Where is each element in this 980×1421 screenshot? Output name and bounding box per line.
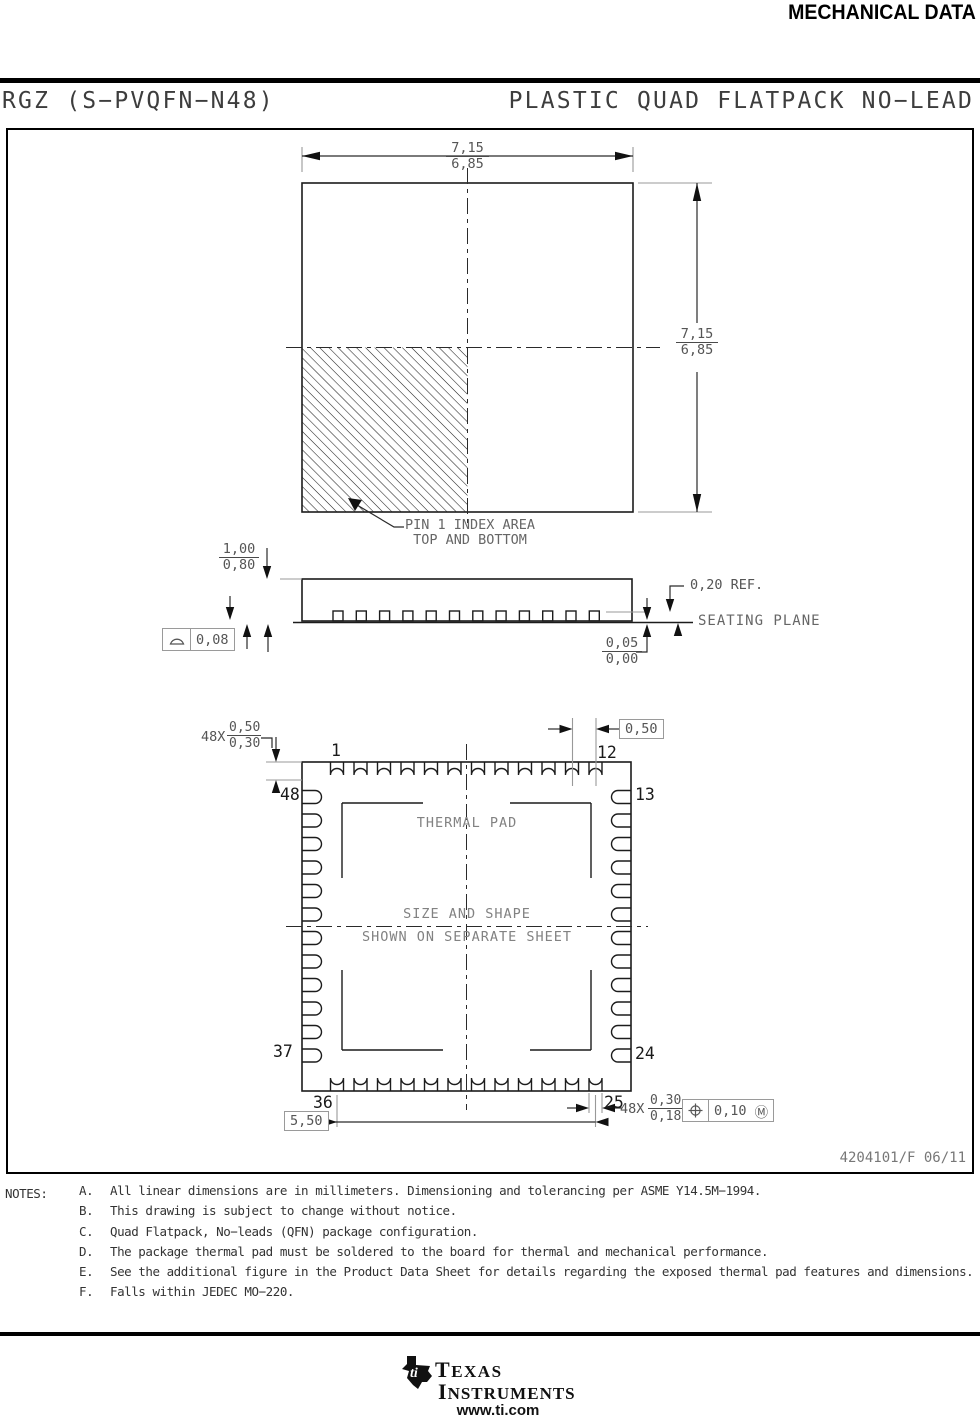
- seating-plane-label: SEATING PLANE: [698, 613, 821, 629]
- note-item: A. All linear dimensions are in millimet…: [0, 1183, 980, 1203]
- notes-section: NOTES: A. All linear dimensions are in m…: [0, 1183, 980, 1305]
- thermal-pad-label: THERMAL PAD: [357, 815, 577, 831]
- dim-body-height: 7,15 6,85: [676, 327, 718, 358]
- max-material-modifier-icon: Ⓜ: [755, 1101, 769, 1121]
- note-item: E. See the additional figure in the Prod…: [0, 1264, 980, 1284]
- note-item: F. Falls within JEDEC MO−220.: [0, 1284, 980, 1304]
- drawing-number: 4204101/F 06/11: [826, 1150, 966, 1166]
- pin-label-1: 1: [331, 741, 341, 760]
- pad-length-count: 48X: [201, 729, 225, 745]
- footer-rule: [0, 1332, 980, 1336]
- flatness-symbol-icon: [163, 629, 190, 650]
- side-view-leads: [333, 611, 599, 621]
- top-view-linework: [286, 147, 712, 527]
- size-note-line2: SHOWN ON SEPARATE SHEET: [357, 929, 577, 945]
- pin-label-24: 24: [635, 1044, 655, 1063]
- pin-label-12: 12: [597, 743, 617, 762]
- pin1-index-note: PIN 1 INDEX AREA TOP AND BOTTOM: [385, 518, 555, 548]
- dim-pad-width: 0,30 0,18: [648, 1093, 682, 1124]
- svg-text:ti: ti: [410, 1366, 418, 1381]
- mechanical-data-page: MECHANICAL DATA RGZ (S−PVQFN−N48) PLASTI…: [0, 0, 980, 1421]
- note-item: B. This drawing is subject to change wit…: [0, 1203, 980, 1223]
- pin-label-48: 48: [280, 785, 300, 804]
- dim-span-box: 5,50: [284, 1111, 329, 1131]
- note-item: D. The package thermal pad must be solde…: [0, 1244, 980, 1264]
- dim-package-height: 1,00 0,80: [219, 542, 259, 573]
- position-tolerance: 0,10 Ⓜ: [708, 1100, 773, 1121]
- note-item: C. Quad Flatpack, No−leads (QFN) package…: [0, 1224, 980, 1244]
- ti-url: www.ti.com: [438, 1402, 558, 1419]
- flatness-control-frame: 0,08: [162, 628, 235, 651]
- dim-pad-length: 0,50 0,30: [227, 720, 261, 751]
- dim-body-width: 7,15 6,85: [446, 141, 489, 172]
- bottom-view-linework: [261, 718, 648, 1127]
- pin-label-25: 25: [604, 1093, 624, 1112]
- pin-label-13: 13: [635, 785, 655, 804]
- size-note-line1: SIZE AND SHAPE: [357, 906, 577, 922]
- dim-pitch-box: 0,50: [619, 719, 664, 739]
- lead-thickness-ref: 0,20 REF.: [690, 577, 763, 593]
- position-symbol-icon: [683, 1100, 708, 1121]
- pin-label-36: 36: [313, 1093, 333, 1112]
- pin-label-37: 37: [273, 1042, 293, 1061]
- position-control-frame: 0,10 Ⓜ: [682, 1099, 774, 1122]
- pin1-index-hatch: [302, 348, 468, 513]
- dim-standoff: 0,05 0,00: [602, 636, 642, 667]
- ti-texas-logo-icon: ti: [399, 1355, 433, 1391]
